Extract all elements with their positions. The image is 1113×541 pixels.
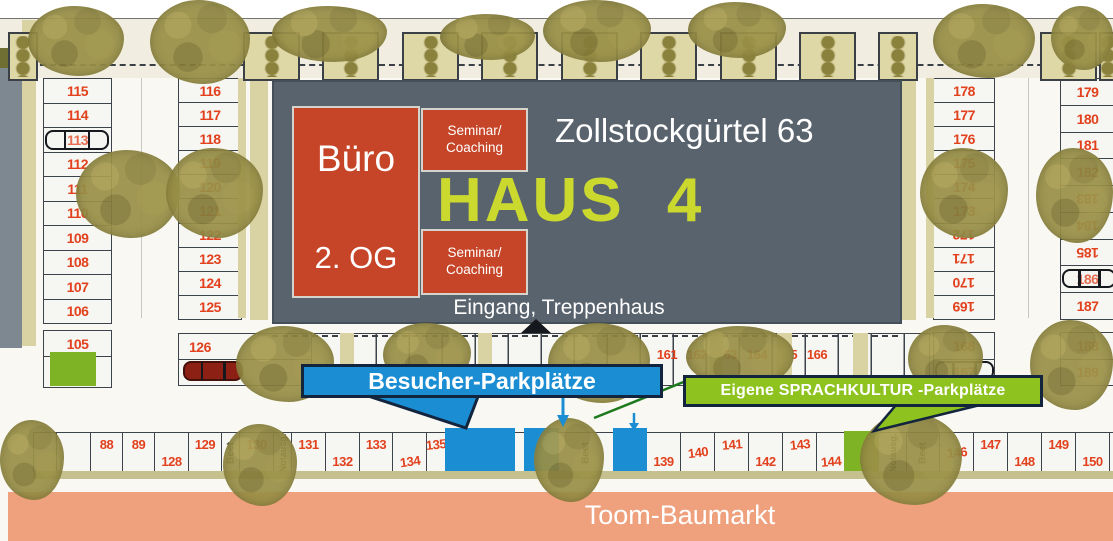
balcony — [640, 32, 697, 81]
parking-space: 180 — [1061, 105, 1113, 132]
parking-space-number: 149 — [1048, 437, 1068, 452]
car-icon — [45, 130, 109, 150]
parking-space-number: 150 — [1082, 454, 1102, 469]
visitor-space-marker — [479, 428, 515, 473]
parking-space-number: 178 — [953, 84, 975, 98]
tree — [150, 0, 250, 84]
street-address: Zollstockgürtel 63 — [555, 112, 814, 150]
office-label: Büro — [294, 138, 418, 180]
parking-space: 177 — [934, 102, 994, 126]
parking-space-blue — [479, 433, 514, 472]
parking-space-number: 118 — [199, 132, 220, 146]
parking-space: 147 — [973, 433, 1007, 472]
parking-space: 124 — [179, 271, 241, 295]
visitor-parking-callout-label: Besucher-Parkplätze — [368, 368, 596, 395]
seminar-bottom-line1: Seminar/ — [423, 245, 526, 262]
parking-space: 139 — [646, 433, 680, 472]
parking-space-number: 177 — [953, 108, 975, 122]
seminar-top-line1: Seminar/ — [423, 123, 526, 140]
parking-space: 118 — [179, 126, 241, 150]
parking-space-number: 171 — [953, 252, 975, 266]
parking-space-number: 124 — [199, 276, 221, 290]
parking-space-number: 185 — [1077, 246, 1099, 260]
tree — [223, 424, 297, 506]
parking-space: 133 — [359, 433, 392, 472]
tree — [920, 148, 1008, 238]
tree — [1036, 148, 1113, 243]
office-box: Büro 2. OG — [292, 106, 420, 298]
parking-space-number: 166 — [802, 347, 832, 362]
tree — [543, 0, 651, 62]
parking-space-number: 142 — [755, 454, 775, 469]
house-label: HAUS 4 — [437, 170, 704, 232]
parking-space-number: 134 — [398, 453, 420, 471]
parking-space-number: 125 — [199, 300, 221, 314]
tree — [76, 150, 180, 238]
tree — [688, 2, 786, 58]
parking-space-number: 144 — [820, 453, 841, 470]
parking-space-number: 180 — [1077, 112, 1099, 126]
hedge-icon — [819, 36, 836, 77]
parking-space: 106 — [44, 299, 111, 324]
tree — [28, 6, 124, 76]
parking-space-number: 141 — [721, 436, 742, 453]
tree — [272, 6, 387, 62]
parking-space: 143 — [782, 433, 816, 472]
office-floor-label: 2. OG — [294, 240, 418, 276]
parking-space: 115 — [44, 79, 111, 103]
parking-space-number: 176 — [953, 132, 975, 146]
parking-space-number: 108 — [67, 255, 89, 269]
parking-space-number: 148 — [1014, 454, 1034, 469]
seminar-box-top: Seminar/ Coaching — [421, 108, 528, 172]
tree — [166, 148, 263, 238]
parking-space: 117 — [179, 102, 241, 126]
store-bar-label: Toom-Baumarkt — [480, 500, 880, 531]
parking-space: 140 — [680, 433, 714, 472]
parking-space-number: 147 — [980, 437, 1000, 452]
own-parking-callout: Eigene SPRACHKULTUR -Parkplätze — [683, 375, 1043, 407]
parking-space: 179 — [1061, 79, 1113, 105]
parking-space: 187 — [1061, 292, 1113, 319]
parking-space-number: 88 — [100, 437, 113, 452]
parking-space: 123 — [179, 247, 241, 271]
car-window-line — [201, 362, 204, 380]
parking-space: 169 — [934, 295, 994, 319]
seminar-box-bottom: Seminar/ Coaching — [421, 229, 528, 295]
parking-space-number: 128 — [161, 454, 181, 469]
parking-space-number: 126 — [189, 340, 211, 354]
own-parking-callout-label: Eigene SPRACHKULTUR -Parkplätze — [720, 382, 1005, 400]
parking-space: 114 — [44, 103, 111, 128]
parking-space: 107 — [44, 274, 111, 299]
parking-space-number: 143 — [789, 436, 811, 453]
parking-space: 176 — [934, 126, 994, 150]
parking-space: 178 — [934, 79, 994, 102]
site-map: 1151141131121111101091081071061051161171… — [0, 0, 1113, 541]
parking-space-number: 107 — [67, 280, 89, 294]
entrance-label: Eingang, Treppenhaus — [394, 296, 724, 320]
parking-space-number: 131 — [298, 437, 318, 452]
parking-space-number: 105 — [67, 337, 89, 351]
parking-space-number: 106 — [67, 304, 89, 318]
parking-space: 108 — [44, 250, 111, 275]
parking-space: 149 — [1041, 433, 1075, 472]
seminar-bottom-line2: Coaching — [423, 262, 526, 279]
tree — [440, 14, 535, 60]
parking-space: 88 — [90, 433, 122, 472]
parking-space-number: 169 — [953, 300, 975, 314]
tree — [1051, 6, 1113, 70]
visitor-space-marker — [613, 428, 647, 473]
parking-space: 171 — [934, 247, 994, 271]
car-window-line — [64, 131, 67, 149]
parking-space: 151 — [1109, 433, 1113, 472]
parking-space-number: 187 — [1077, 299, 1099, 313]
empty-parking-space — [514, 433, 524, 472]
parking-space: 125 — [179, 295, 241, 319]
car-icon — [183, 361, 243, 381]
hedge-icon — [660, 36, 677, 77]
parking-space: 170 — [934, 271, 994, 295]
parking-space: 150 — [1075, 433, 1109, 472]
tree — [534, 418, 604, 502]
car-window-line — [88, 131, 91, 149]
parking-space-number: 179 — [1077, 85, 1099, 99]
balcony — [878, 32, 918, 81]
parking-space: 135 — [426, 433, 445, 472]
parking-space: 132 — [325, 433, 359, 472]
parking-space: 142 — [748, 433, 782, 472]
hedge-icon — [422, 36, 439, 77]
parking-space-number: 116 — [199, 84, 220, 98]
parking-space-number: 140 — [687, 444, 709, 461]
parking-space: 129 — [188, 433, 221, 472]
parking-space-number: 133 — [366, 437, 386, 452]
parking-space-blue — [445, 433, 479, 472]
seminar-top-line2: Coaching — [423, 140, 526, 157]
divider-line — [1028, 78, 1029, 318]
tree — [860, 413, 962, 505]
parking-space-number: 114 — [67, 108, 88, 122]
parking-space: 89 — [122, 433, 154, 472]
visitor-callout-pointer — [362, 394, 479, 428]
visitor-parking-callout: Besucher-Parkplätze — [301, 364, 663, 398]
parking-space-green — [50, 352, 96, 386]
parking-space-number: 135 — [425, 436, 447, 453]
tree — [0, 420, 64, 500]
car-window-line — [1078, 270, 1081, 287]
parking-space: 148 — [1007, 433, 1041, 472]
parking-space: 134 — [392, 433, 426, 472]
car-icon — [1062, 269, 1113, 288]
parking-space-number: 89 — [132, 437, 145, 452]
parking-space-number: 115 — [67, 84, 88, 98]
parking-space-number: 161 — [652, 347, 682, 362]
tree — [933, 4, 1035, 78]
car-window-line — [223, 362, 226, 380]
parking-space-number: 109 — [67, 231, 89, 245]
parking-space-number: 132 — [332, 454, 352, 469]
parking-space: 141 — [714, 433, 748, 472]
street-edge-strip — [0, 66, 22, 348]
parking-space-blue — [613, 433, 646, 472]
parking-space-number: 123 — [199, 252, 221, 266]
parking-space: 185 — [1061, 239, 1113, 266]
parking-space-number: 129 — [195, 437, 215, 452]
building-sign: Büro 2. OG Seminar/ Coaching Seminar/ Co… — [272, 80, 902, 324]
parking-space: 128 — [154, 433, 188, 472]
hedge-icon — [890, 36, 907, 77]
balcony — [799, 32, 856, 81]
parking-space-number: 170 — [953, 276, 975, 290]
parking-space-number: 117 — [199, 108, 220, 122]
car-window-line — [1098, 270, 1101, 287]
parking-space-number: 139 — [653, 454, 673, 469]
parking-space: 144 — [816, 433, 844, 472]
visitor-space-marker — [445, 428, 480, 473]
